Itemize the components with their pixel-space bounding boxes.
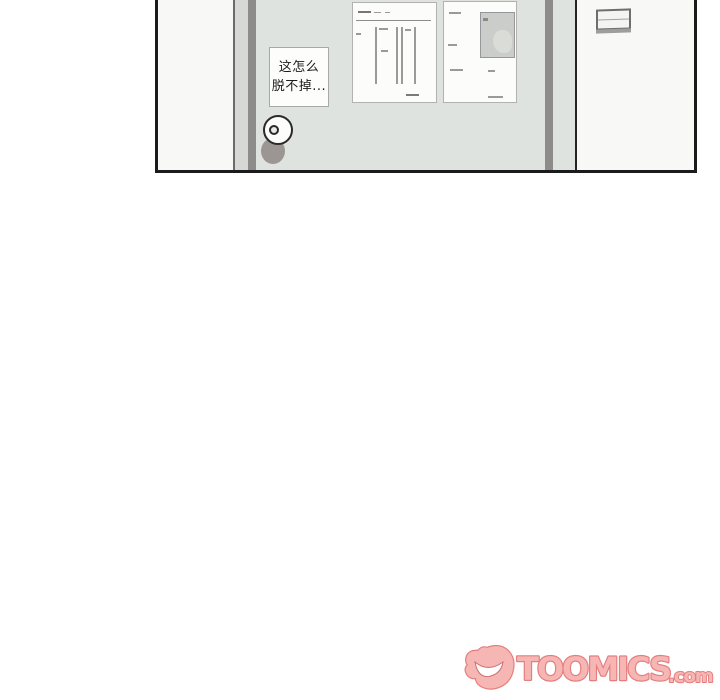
door-frame-dark-strip-right <box>545 0 553 170</box>
door-edge-strip <box>553 0 575 170</box>
door-poster-schedule <box>352 2 437 103</box>
speech-note: 这怎么 脱不掉... <box>269 47 329 107</box>
poster-scribble <box>448 44 457 46</box>
door-poster-notice <box>443 1 517 103</box>
toomics-watermark: TOOMICS .com <box>462 643 720 697</box>
poster-scribble <box>381 50 388 52</box>
poster-scribble <box>449 12 461 14</box>
door-frame-dark-strip-left <box>248 0 256 170</box>
speech-note-line2: 脱不掉... <box>272 77 326 96</box>
photo-mark <box>483 18 488 21</box>
poster-rule-line <box>356 20 431 21</box>
comic-panel: 这怎么 脱不掉... <box>155 0 697 173</box>
comic-page: { "comic_panel": { "speech_note": { "lin… <box>0 0 720 700</box>
wall-corner-line <box>575 0 577 170</box>
poster-scribble <box>488 96 503 98</box>
poster-scribble <box>379 28 388 30</box>
toomics-logo: TOOMICS .com <box>462 643 720 693</box>
doorknob <box>263 115 293 145</box>
poster-scribble <box>358 11 371 13</box>
door-sign-divider <box>598 18 629 20</box>
door-sign <box>596 8 631 30</box>
poster-scribble <box>406 94 419 96</box>
toomics-domain-text: .com <box>668 666 713 687</box>
poster-scribble <box>356 33 361 35</box>
poster-column-line <box>375 27 377 84</box>
doorknob-keyhole <box>269 125 279 135</box>
poster-photo <box>480 12 515 58</box>
poster-column-line <box>396 27 398 84</box>
toomics-brand-text: TOOMICS <box>517 650 670 688</box>
poster-column-line <box>414 27 416 84</box>
photo-highlight <box>493 30 512 53</box>
poster-column-line <box>401 27 403 84</box>
door-sign-base <box>596 28 631 33</box>
poster-scribble <box>405 29 411 31</box>
poster-scribble <box>385 12 390 13</box>
poster-scribble <box>488 70 495 72</box>
toomics-mask-icon <box>466 646 514 688</box>
speech-note-line1: 这怎么 <box>279 58 320 77</box>
poster-scribble <box>374 12 381 13</box>
poster-scribble <box>450 69 463 71</box>
door-frame-light-strip <box>235 0 248 170</box>
